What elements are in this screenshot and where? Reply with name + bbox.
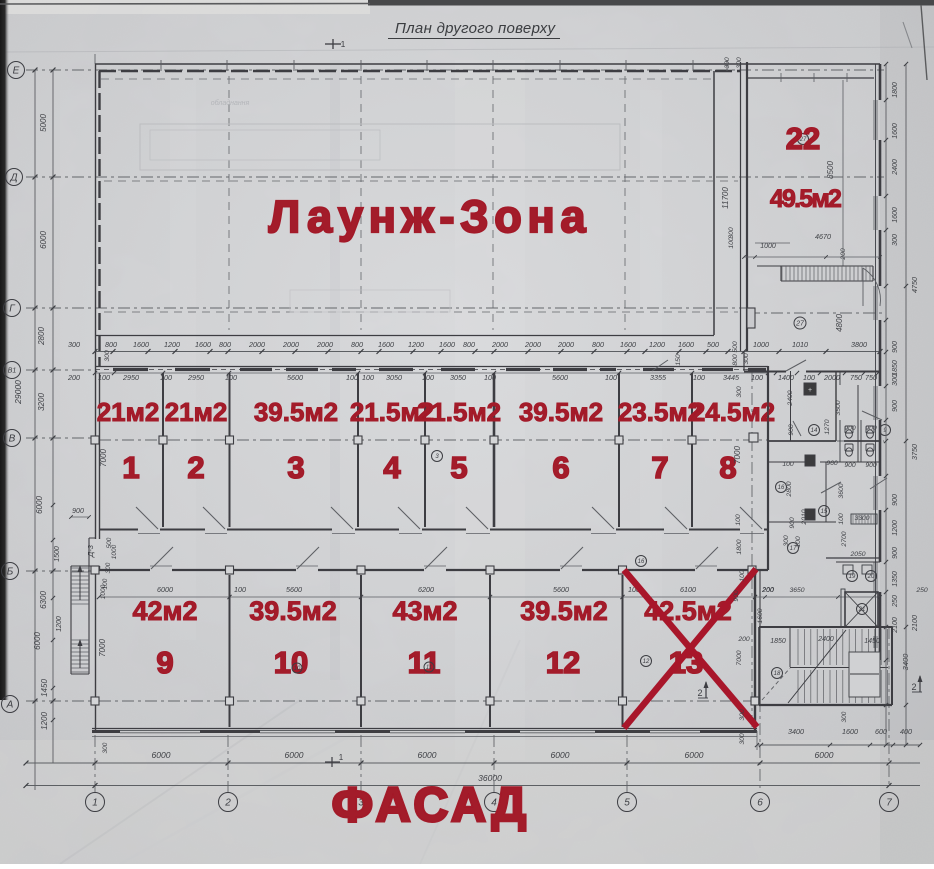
svg-text:6000: 6000 <box>815 750 834 760</box>
svg-text:1600: 1600 <box>678 340 694 349</box>
svg-text:1200: 1200 <box>164 340 180 349</box>
svg-text:100: 100 <box>605 373 617 382</box>
svg-text:1800: 1800 <box>892 82 899 98</box>
svg-text:1600: 1600 <box>378 340 394 349</box>
svg-text:750: 750 <box>850 373 862 382</box>
svg-text:900: 900 <box>844 425 856 432</box>
svg-text:1200: 1200 <box>56 616 63 632</box>
svg-text:2400: 2400 <box>892 159 899 176</box>
svg-text:1: 1 <box>122 450 139 485</box>
svg-text:900: 900 <box>892 494 899 506</box>
svg-text:200: 200 <box>840 248 847 261</box>
svg-text:1600: 1600 <box>133 340 149 349</box>
svg-text:3600: 3600 <box>838 483 845 498</box>
svg-text:100: 100 <box>362 373 374 382</box>
svg-text:Д: Д <box>9 173 17 184</box>
svg-text:100: 100 <box>225 373 237 382</box>
svg-text:Д-3: Д-3 <box>86 544 95 558</box>
svg-text:7000: 7000 <box>99 449 108 467</box>
svg-text:43м2: 43м2 <box>392 596 457 626</box>
svg-text:2100: 2100 <box>910 615 919 632</box>
svg-text:200: 200 <box>761 587 774 594</box>
svg-text:29000: 29000 <box>13 380 23 405</box>
svg-text:2000: 2000 <box>823 373 840 382</box>
svg-text:900: 900 <box>733 590 740 602</box>
svg-text:800: 800 <box>463 340 475 349</box>
svg-text:3500: 3500 <box>835 400 842 415</box>
svg-text:960: 960 <box>826 460 838 467</box>
svg-text:1600: 1600 <box>757 608 764 623</box>
svg-text:6000: 6000 <box>39 231 48 249</box>
svg-text:200: 200 <box>67 373 80 382</box>
svg-text:2700: 2700 <box>841 531 848 547</box>
svg-text:1600: 1600 <box>892 207 899 223</box>
svg-text:100: 100 <box>803 373 815 382</box>
svg-text:39.5м2: 39.5м2 <box>249 596 337 626</box>
svg-text:6000: 6000 <box>418 750 437 760</box>
svg-text:2010: 2010 <box>801 509 808 525</box>
svg-text:3050: 3050 <box>386 373 402 382</box>
svg-text:15: 15 <box>821 509 828 515</box>
svg-text:6000: 6000 <box>685 750 704 760</box>
svg-text:1010: 1010 <box>792 340 808 349</box>
svg-text:1: 1 <box>339 753 344 762</box>
svg-text:3750: 3750 <box>910 444 919 460</box>
svg-text:2: 2 <box>697 688 702 698</box>
svg-text:2800: 2800 <box>786 481 793 497</box>
svg-text:300: 300 <box>105 562 112 573</box>
svg-text:22: 22 <box>786 121 820 156</box>
svg-text:1: 1 <box>92 798 98 809</box>
svg-text:6200: 6200 <box>418 585 434 594</box>
svg-text:1600: 1600 <box>892 123 899 139</box>
svg-text:7000: 7000 <box>736 650 743 665</box>
svg-text:100: 100 <box>739 570 746 582</box>
svg-text:100: 100 <box>728 237 735 249</box>
svg-text:1200: 1200 <box>40 712 49 730</box>
svg-text:2: 2 <box>187 450 204 485</box>
svg-text:4800: 4800 <box>835 314 844 332</box>
svg-text:2400: 2400 <box>787 390 794 406</box>
svg-text:39.5м2: 39.5м2 <box>254 397 338 427</box>
svg-text:800: 800 <box>105 340 117 349</box>
svg-text:21м2: 21м2 <box>165 397 228 427</box>
svg-text:39.5м2: 39.5м2 <box>520 596 608 626</box>
svg-text:300: 300 <box>68 340 80 349</box>
svg-text:6: 6 <box>552 450 569 485</box>
svg-text:300: 300 <box>736 57 743 69</box>
svg-text:900: 900 <box>892 400 899 412</box>
svg-text:1200: 1200 <box>649 340 665 349</box>
svg-text:Б: Б <box>7 567 14 578</box>
svg-text:1000: 1000 <box>100 584 107 599</box>
svg-text:500: 500 <box>707 340 719 349</box>
svg-text:150: 150 <box>675 354 682 366</box>
svg-text:300: 300 <box>104 350 111 362</box>
svg-text:100: 100 <box>98 373 110 382</box>
svg-text:1450: 1450 <box>864 638 880 645</box>
svg-text:3400: 3400 <box>788 727 804 736</box>
svg-text:2000: 2000 <box>524 340 541 349</box>
svg-text:900: 900 <box>865 462 877 469</box>
svg-text:1600: 1600 <box>195 340 211 349</box>
svg-text:6000: 6000 <box>285 750 304 760</box>
svg-text:24.5м2: 24.5м2 <box>691 397 775 427</box>
svg-text:+: + <box>808 387 812 394</box>
svg-text:5000: 5000 <box>39 114 48 132</box>
svg-text:2000: 2000 <box>316 340 333 349</box>
svg-text:2950: 2950 <box>187 373 204 382</box>
svg-text:12: 12 <box>643 659 650 665</box>
svg-text:300: 300 <box>739 709 746 721</box>
svg-text:1600: 1600 <box>842 727 858 736</box>
svg-text:27: 27 <box>795 321 805 328</box>
svg-text:14: 14 <box>811 428 818 434</box>
svg-text:1500: 1500 <box>54 546 61 562</box>
svg-text:1270: 1270 <box>824 419 831 434</box>
svg-text:1600: 1600 <box>439 340 455 349</box>
svg-text:12: 12 <box>546 645 580 680</box>
svg-text:1200: 1200 <box>892 520 899 536</box>
svg-text:900: 900 <box>892 547 899 559</box>
svg-text:4: 4 <box>383 450 401 485</box>
svg-text:300: 300 <box>724 57 731 69</box>
svg-text:2000: 2000 <box>282 340 299 349</box>
svg-text:100: 100 <box>751 373 763 382</box>
svg-text:900: 900 <box>892 341 899 353</box>
svg-text:300: 300 <box>841 711 848 722</box>
svg-text:2000: 2000 <box>491 340 508 349</box>
svg-text:1: 1 <box>341 39 346 49</box>
svg-text:3400: 3400 <box>901 653 910 671</box>
svg-text:обладнання: обладнання <box>211 99 250 107</box>
svg-text:5: 5 <box>624 798 630 809</box>
svg-text:800: 800 <box>219 340 231 349</box>
svg-text:300: 300 <box>739 733 746 745</box>
svg-text:11: 11 <box>408 645 441 680</box>
svg-text:7000: 7000 <box>733 446 742 464</box>
svg-text:100: 100 <box>234 585 246 594</box>
svg-text:10: 10 <box>274 645 308 680</box>
svg-text:20: 20 <box>867 574 875 580</box>
svg-text:5600: 5600 <box>552 373 568 382</box>
svg-text:21.5м2: 21.5м2 <box>417 397 501 427</box>
svg-text:2: 2 <box>911 682 916 692</box>
svg-text:1000: 1000 <box>753 340 769 349</box>
svg-text:1800: 1800 <box>736 539 743 554</box>
svg-text:3445: 3445 <box>723 373 740 382</box>
svg-text:2800: 2800 <box>37 327 46 346</box>
svg-text:А: А <box>6 700 14 711</box>
svg-text:300: 300 <box>736 386 743 398</box>
svg-text:6000: 6000 <box>35 496 44 514</box>
svg-text:39.5м2: 39.5м2 <box>519 397 603 427</box>
svg-text:900: 900 <box>844 462 856 469</box>
svg-text:8500: 8500 <box>826 161 835 179</box>
svg-text:1850: 1850 <box>770 638 786 645</box>
svg-text:21м2: 21м2 <box>97 397 160 427</box>
svg-text:100: 100 <box>735 514 742 526</box>
svg-text:900: 900 <box>788 424 795 436</box>
svg-text:100: 100 <box>782 461 794 468</box>
svg-text:100: 100 <box>693 373 705 382</box>
svg-text:100: 100 <box>838 513 845 525</box>
svg-text:19: 19 <box>849 574 856 580</box>
svg-text:6000: 6000 <box>152 750 171 760</box>
svg-text:250: 250 <box>915 587 928 594</box>
svg-text:300: 300 <box>728 227 735 239</box>
svg-text:В: В <box>9 434 16 445</box>
svg-text:ФАСАД: ФАСАД <box>332 779 530 832</box>
svg-text:3200: 3200 <box>37 393 46 411</box>
svg-text:6300: 6300 <box>39 591 48 609</box>
svg-text:100: 100 <box>795 536 802 548</box>
svg-text:5: 5 <box>450 450 467 485</box>
svg-text:250: 250 <box>892 595 899 608</box>
svg-text:Лаунж-Зона: Лаунж-Зона <box>269 191 592 242</box>
svg-text:800: 800 <box>351 340 363 349</box>
svg-text:6000: 6000 <box>157 585 173 594</box>
svg-text:18: 18 <box>774 671 781 677</box>
svg-text:200: 200 <box>737 636 750 643</box>
svg-text:2: 2 <box>224 798 231 809</box>
svg-text:2950: 2950 <box>122 373 139 382</box>
svg-text:2000: 2000 <box>557 340 574 349</box>
svg-text:23.5м2: 23.5м2 <box>618 397 702 427</box>
svg-text:1400: 1400 <box>778 373 794 382</box>
svg-text:6100: 6100 <box>680 585 696 594</box>
svg-text:1600: 1600 <box>620 340 636 349</box>
svg-text:5600: 5600 <box>286 585 302 594</box>
svg-text:1000: 1000 <box>760 243 776 250</box>
svg-text:3050: 3050 <box>450 373 466 382</box>
svg-text:2100: 2100 <box>892 617 899 634</box>
svg-text:300: 300 <box>102 742 109 753</box>
svg-text:Е: Е <box>13 66 20 77</box>
svg-text:1200: 1200 <box>408 340 424 349</box>
svg-text:300: 300 <box>892 234 899 246</box>
svg-text:6000: 6000 <box>551 750 570 760</box>
svg-text:7: 7 <box>651 450 668 485</box>
svg-text:1000: 1000 <box>111 544 118 559</box>
svg-text:2050: 2050 <box>849 551 865 558</box>
svg-text:3800: 3800 <box>851 340 867 349</box>
svg-text:3355: 3355 <box>650 373 667 382</box>
svg-text:11: 11 <box>426 665 432 671</box>
svg-text:9: 9 <box>156 645 173 680</box>
svg-text:800: 800 <box>732 354 739 366</box>
svg-text:7: 7 <box>886 798 892 809</box>
svg-text:10: 10 <box>294 666 301 672</box>
svg-text:16: 16 <box>638 559 645 565</box>
svg-text:4670: 4670 <box>815 232 831 241</box>
svg-text:5600: 5600 <box>553 585 569 594</box>
svg-text:1850: 1850 <box>892 360 899 376</box>
svg-text:600: 600 <box>875 727 887 736</box>
svg-text:1350: 1350 <box>892 571 899 587</box>
svg-text:4750: 4750 <box>910 277 919 293</box>
svg-text:300: 300 <box>892 374 899 386</box>
svg-text:900: 900 <box>789 517 796 529</box>
svg-text:6: 6 <box>757 798 763 809</box>
svg-text:5600: 5600 <box>287 373 303 382</box>
svg-text:49.5м2: 49.5м2 <box>770 185 841 213</box>
svg-text:План другого поверху: План другого поверху <box>395 20 557 37</box>
svg-text:16: 16 <box>778 485 785 491</box>
svg-text:2400: 2400 <box>817 636 834 643</box>
svg-text:7000: 7000 <box>98 639 107 657</box>
svg-text:300: 300 <box>783 535 790 547</box>
svg-text:6000: 6000 <box>33 632 42 650</box>
svg-text:2000: 2000 <box>248 340 265 349</box>
svg-text:11700: 11700 <box>721 187 730 209</box>
svg-text:1450: 1450 <box>40 679 49 697</box>
svg-text:3: 3 <box>287 450 304 485</box>
svg-text:42м2: 42м2 <box>132 596 197 626</box>
svg-text:900: 900 <box>72 508 84 515</box>
svg-text:900: 900 <box>865 425 877 432</box>
svg-text:500: 500 <box>732 341 739 353</box>
svg-text:В1: В1 <box>8 368 17 375</box>
svg-text:3650: 3650 <box>789 587 804 594</box>
svg-text:800: 800 <box>592 340 604 349</box>
